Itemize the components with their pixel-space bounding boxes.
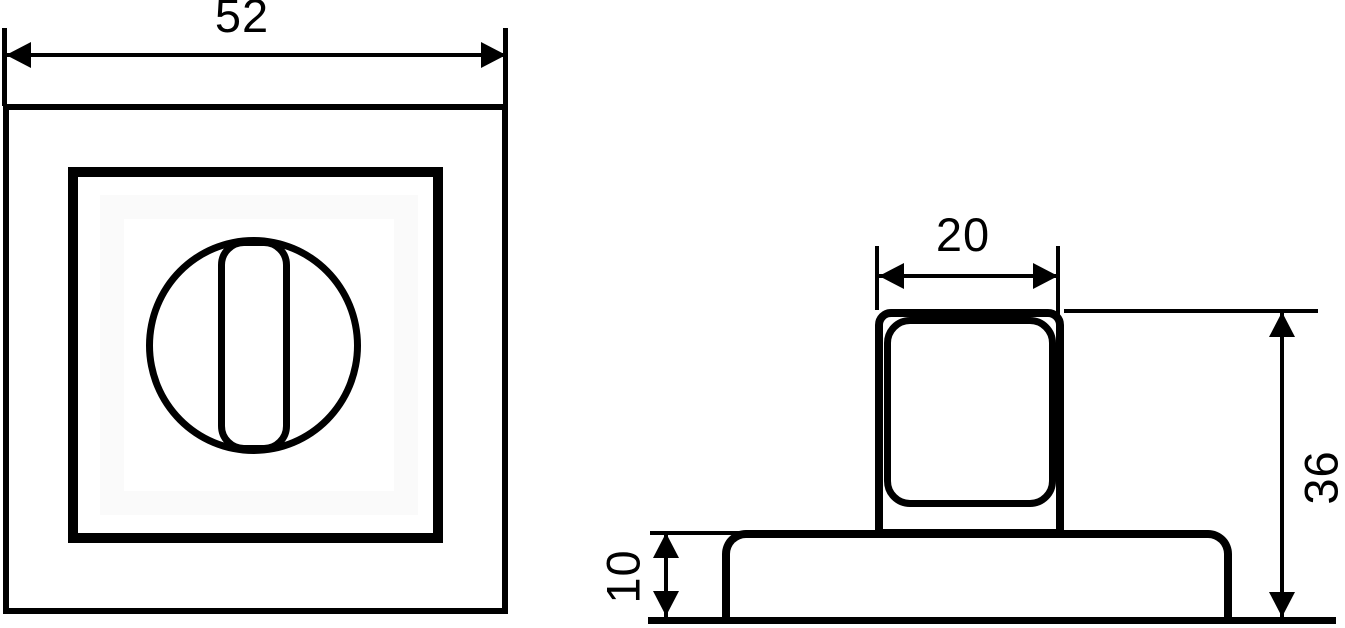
dim-10-label: 10 <box>600 527 647 627</box>
base-bottom-line <box>648 617 1336 624</box>
base-profile <box>722 530 1232 617</box>
knob-profile-inner <box>884 317 1056 507</box>
dim-20-label: 20 <box>913 211 1013 258</box>
dim-36-arrow-up-icon <box>1269 312 1295 337</box>
technical-drawing-canvas: 52 20 36 10 <box>0 0 1345 628</box>
dim-36-arrow-down-icon <box>1269 592 1295 617</box>
dim-20-arrow-left-icon <box>879 263 904 289</box>
dim-52-arrow-right-icon <box>481 42 506 68</box>
dim-52-label: 52 <box>192 0 292 39</box>
dim-52-dimension-line <box>6 53 506 57</box>
dim-36-dimension-line <box>1280 312 1284 618</box>
thumbturn-grip-slot <box>218 239 290 452</box>
dim-20-arrow-right-icon <box>1033 263 1058 289</box>
dim-10-arrow-up-icon <box>653 533 679 558</box>
dim-36-label: 36 <box>1298 428 1345 528</box>
dim-52-arrow-left-icon <box>6 42 31 68</box>
dim-10-arrow-down-icon <box>653 591 679 616</box>
dim-20-dimension-line <box>879 274 1058 278</box>
